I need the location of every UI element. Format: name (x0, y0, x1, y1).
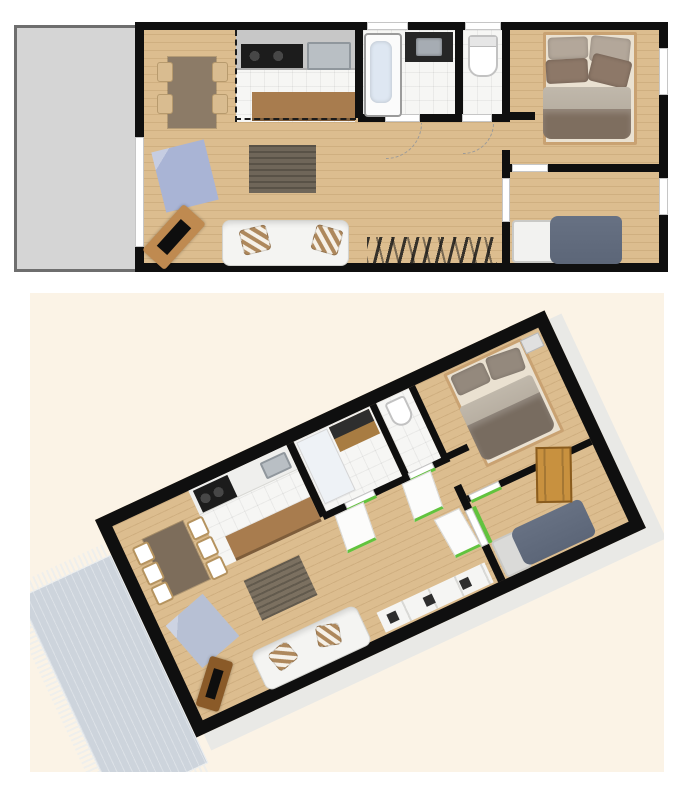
wardrobe-drawer (423, 594, 436, 607)
bathroom-window (367, 22, 408, 30)
wall-3d (440, 444, 469, 463)
sideboard-top (142, 204, 206, 270)
bathtub (364, 33, 402, 117)
dark-rug (249, 145, 316, 193)
terrace-fringe-top (30, 543, 111, 598)
striped-pillow (310, 224, 344, 257)
wall-master-stub (502, 112, 535, 120)
kitchen-open-boundary-v (235, 30, 237, 122)
bed-blanket (550, 216, 622, 264)
striped-pillow (238, 224, 271, 256)
wardrobe-rack (367, 237, 497, 264)
bed-blanket (509, 498, 597, 567)
wall-kitchen-bath (355, 22, 363, 118)
toilet-tank (470, 37, 496, 47)
wc-door (462, 114, 492, 122)
terrace-fringe-left (30, 598, 116, 772)
building-2d (135, 22, 668, 272)
bar-counter (252, 92, 355, 121)
outer-wall-bottom (135, 263, 668, 272)
bathroom-vanity (405, 32, 453, 62)
master-bedroom-window (659, 48, 668, 95)
terrace-fringe-bottom (116, 762, 213, 772)
tv (205, 668, 223, 700)
floor-plan-2d (0, 0, 696, 285)
bed-blanket (543, 109, 631, 139)
rotated-plan-wrapper (95, 310, 646, 737)
wardrobe-drawer (386, 611, 399, 624)
single-bed (512, 218, 622, 263)
bed-pillow (548, 36, 589, 59)
tv-sideboard (143, 208, 205, 270)
bed-pillow (545, 58, 588, 84)
terrace-2d (14, 25, 138, 272)
bathtub-basin (370, 41, 392, 103)
dining-chair (212, 94, 228, 114)
cooktop (241, 44, 303, 68)
wall-wc-master (502, 22, 510, 118)
floor-plan-3d (30, 293, 664, 772)
wall-bath-wc (455, 22, 463, 118)
striped-pillow (315, 622, 342, 648)
dining-chair (157, 94, 173, 114)
dining-chair (212, 62, 228, 82)
wardrobe-drawer (459, 577, 472, 590)
interior-door-leaning (535, 447, 572, 504)
striped-pillow (267, 640, 300, 672)
dark-rug-3d (244, 555, 318, 621)
double-bed (543, 32, 637, 145)
second-bedroom-window (659, 178, 668, 215)
toilet (468, 35, 498, 77)
wc-window (465, 22, 501, 30)
dining-chair (157, 62, 173, 82)
master-bedroom-door (512, 164, 548, 172)
tv (157, 219, 191, 255)
hall-door (502, 178, 510, 222)
dining-table (168, 57, 216, 128)
sideboard-top (195, 656, 233, 713)
sofa (222, 220, 349, 266)
kitchen-sink (307, 42, 351, 70)
kitchen-open-boundary-h (235, 118, 356, 120)
bed-pillow (450, 361, 492, 396)
vanity-sink (416, 38, 442, 56)
tv-sideboard-3d (181, 649, 254, 720)
floor-plan-page (0, 0, 696, 800)
bed-pillow (485, 347, 527, 381)
